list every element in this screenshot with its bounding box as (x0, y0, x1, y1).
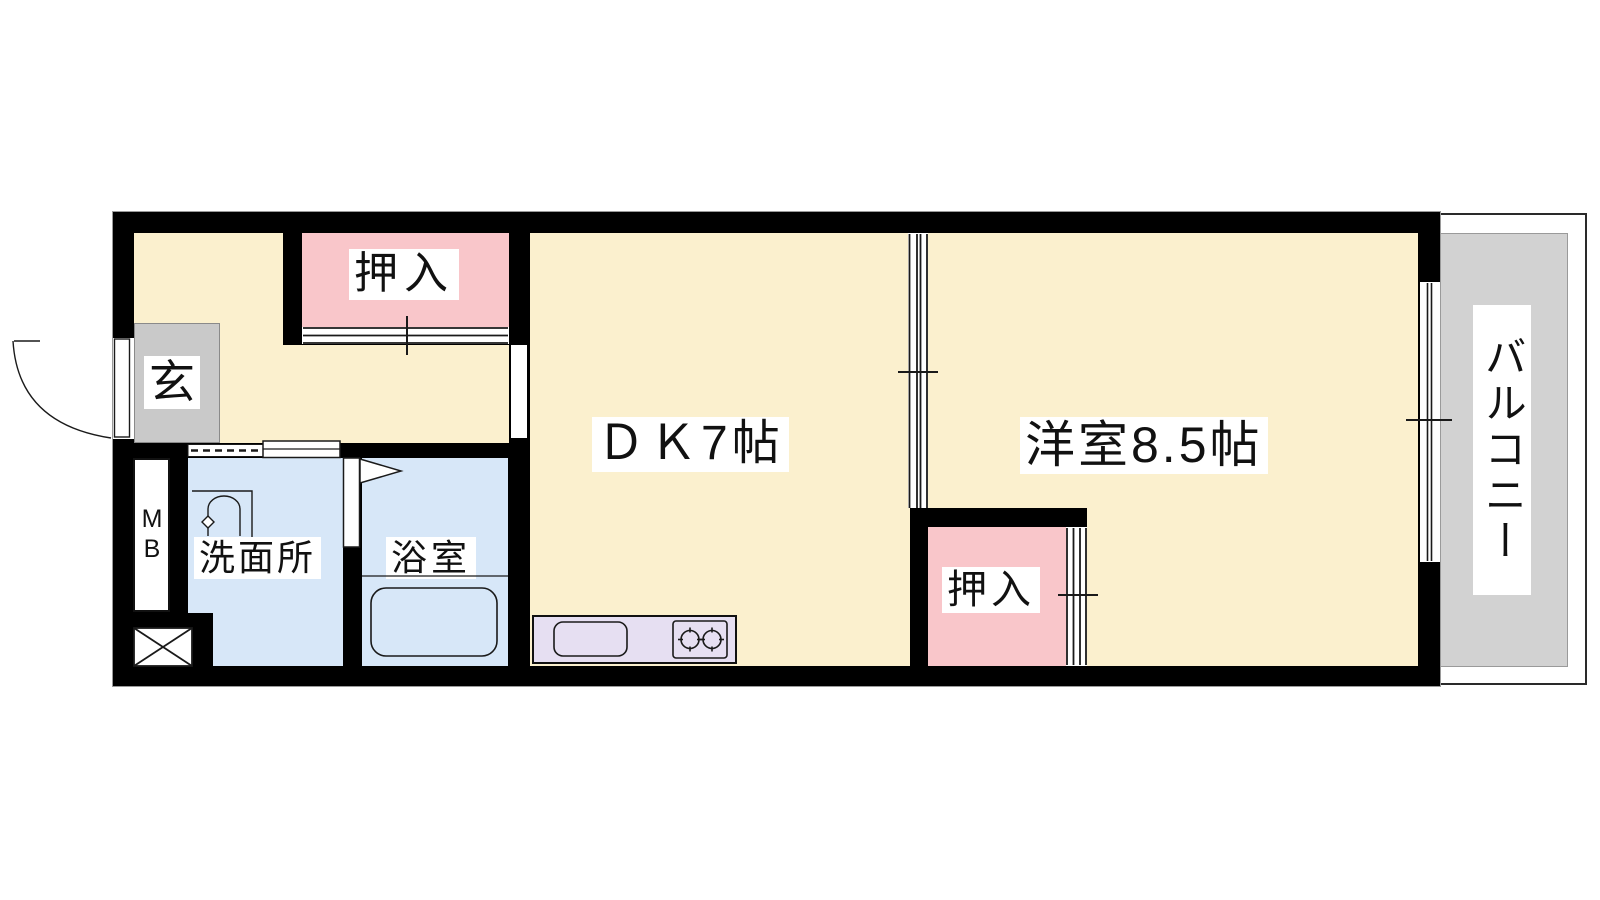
bathroom-label: 浴室 (386, 537, 476, 579)
washroom-wall-step (188, 613, 213, 666)
entrance-door-opening (113, 338, 134, 439)
closet-bottom-door-strip (1066, 527, 1087, 666)
partition-door-strip (908, 233, 928, 508)
meter-box-label: MB (139, 505, 164, 565)
hallway-dk-opening (511, 345, 527, 438)
dining-kitchen-label: ＤＫ7帖 (592, 417, 789, 472)
closet-top-label: 押入 (349, 249, 459, 300)
entrance-label: 玄 (144, 356, 200, 409)
closet-top-door-strip (302, 327, 509, 344)
closet-bottom-left-wall (910, 527, 928, 666)
floor-plan-page: MB 押入 玄 洗面所 浴室 ＤＫ7帖 洋室8.5帖 押入 バルコニー (0, 0, 1600, 900)
balcony-window-opening (1420, 282, 1440, 562)
kitchen-counter (532, 615, 737, 664)
washroom-label: 洗面所 (194, 537, 321, 579)
meter-box: MB (133, 458, 170, 612)
closet-bottom-label: 押入 (942, 567, 1040, 613)
closet-bottom-top-wall (910, 508, 1087, 527)
balcony-label: バルコニー (1473, 305, 1531, 595)
western-room-label: 洋室8.5帖 (1020, 417, 1268, 474)
